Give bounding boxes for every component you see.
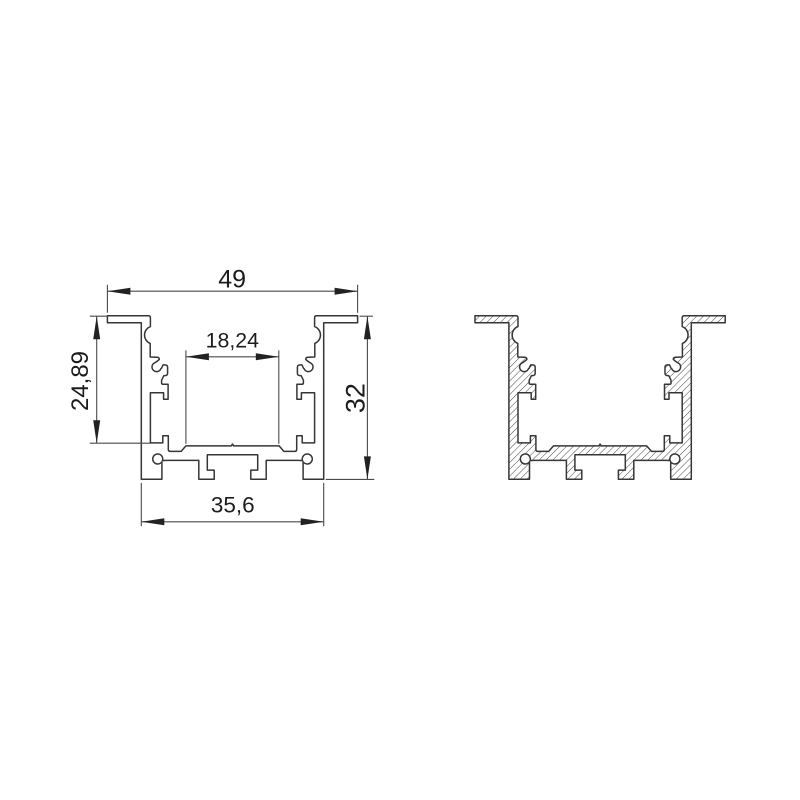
svg-text:18,24: 18,24 — [206, 329, 259, 353]
svg-text:24,89: 24,89 — [67, 351, 94, 411]
svg-text:32: 32 — [340, 383, 370, 413]
svg-text:49: 49 — [218, 266, 246, 294]
svg-text:35,6: 35,6 — [211, 492, 255, 517]
